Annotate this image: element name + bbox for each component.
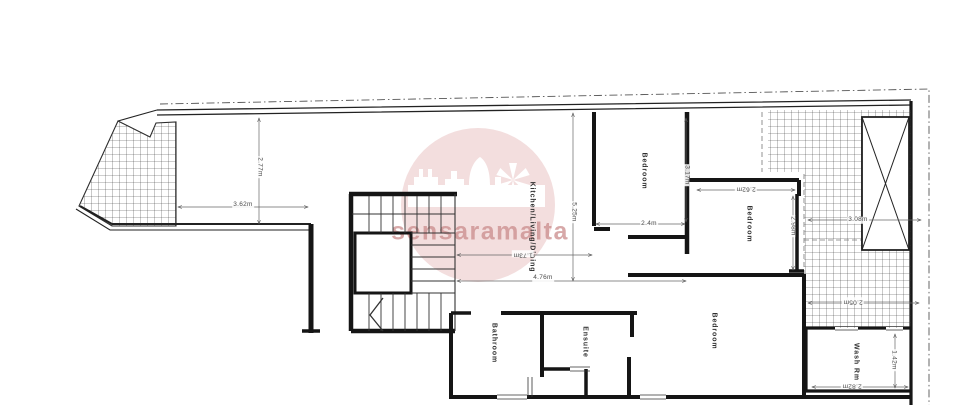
dim-2-4m: 2.4m	[640, 221, 658, 228]
shaft-void	[862, 117, 909, 250]
dim-2-05m: 2.05m	[842, 298, 864, 305]
dim-3-08m: 3.08m	[847, 217, 869, 224]
dim-3-62m: 3.62m	[232, 202, 254, 209]
terrace-hatched-area	[79, 121, 176, 226]
staircase	[352, 196, 455, 331]
dim-2-62m: 2.62m	[735, 185, 757, 192]
room-label-wash-rm: Wash Rm	[853, 343, 860, 381]
floor-plan-page: sensaramalta	[0, 0, 953, 405]
dim-1-42m: 1.42m	[890, 349, 897, 371]
floorplan-drawing	[0, 0, 953, 405]
dim-5-25m: 5.25m	[570, 201, 577, 223]
room-label-bedroom-middle: Bedroom	[746, 205, 753, 242]
room-label-bedroom-bottom: Bedroom	[711, 312, 718, 349]
lift-shaft	[355, 233, 411, 293]
room-label-ensuite: Ensuite	[582, 326, 589, 358]
room-label-kitchen-living-dining: Kitchen/Living/Dining	[529, 182, 536, 273]
dim-2-98m: 2.98m	[789, 215, 796, 237]
room-label-bathroom: Bathroom	[491, 323, 498, 363]
dim-3-17m: 3.17m	[683, 164, 690, 186]
dim-4-76m: 4.76m	[532, 275, 554, 282]
dim-2-82m: 2.82m	[841, 382, 863, 389]
dim-2-77m: 2.77m	[256, 156, 263, 178]
room-label-bedroom-top: Bedroom	[641, 152, 648, 189]
dim-1-73m: 1.73m	[512, 251, 534, 258]
